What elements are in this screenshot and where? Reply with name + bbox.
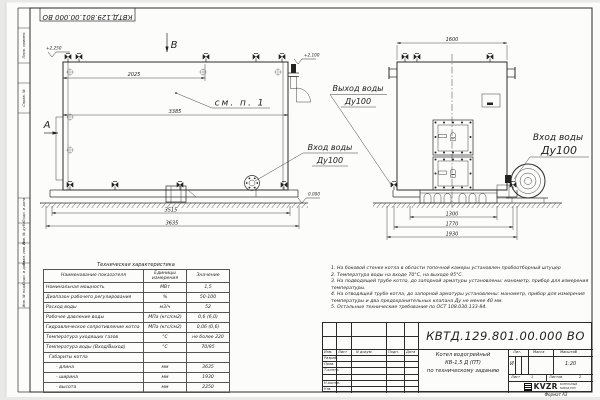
- dim-1600: 1600: [446, 37, 459, 43]
- row-units: МПа (кгс/см2): [144, 323, 187, 333]
- row-name: Гидравлическое сопротивление котла: [44, 323, 144, 333]
- row-value: 52: [187, 303, 230, 313]
- row-tkontr: Т.контр.: [324, 369, 340, 373]
- row-name: - ширина: [44, 373, 144, 383]
- row-nkontr: Н.контр.: [324, 382, 340, 386]
- row-value: 1,5: [187, 283, 230, 293]
- row-value: 0,06 (0,6): [187, 323, 230, 333]
- note-5: 5. Остальные технические требования по О…: [331, 305, 592, 311]
- kvzr-logo-text: KVZR: [534, 382, 558, 391]
- col-ndocum: N докум.: [356, 351, 373, 355]
- table-row: Температура воды (Вход/Выход)°С70/95: [44, 343, 230, 353]
- tech-header-row: Наименование показателя Единицы измерени…: [44, 270, 230, 283]
- elevation-ground: 0.000: [308, 192, 320, 197]
- row-units: МВт: [144, 283, 187, 293]
- company-logo: KVZR КОТЕЛЬНЫЙ ЗАВОД РЭП: [509, 381, 592, 392]
- outlet-pipe: [288, 64, 311, 102]
- row-value: 3635: [187, 363, 230, 373]
- side-view: 2025 3385 3515 3635 В А +2.250 +2.100 0.…: [40, 33, 320, 229]
- table-row: Гидравлическое сопротивление котлаМПа (к…: [44, 323, 230, 333]
- dim-2025: 2025: [128, 72, 141, 78]
- kvzr-logo-icon: [524, 383, 532, 391]
- note-3: 3. На подводящей трубе котла, до запорно…: [331, 279, 592, 291]
- part-title-line1: Котел водогрейный: [436, 352, 490, 360]
- inlet-flange: [245, 176, 260, 191]
- sheets-label: Листов: [549, 376, 562, 380]
- row-units: мм: [144, 373, 187, 383]
- lower-door: [433, 157, 473, 190]
- elevation-top-left: +2.250: [46, 46, 62, 51]
- table-row: Габариты котла: [44, 353, 230, 363]
- row-units: МПа (кгс/см2): [144, 313, 187, 323]
- col-data: Дата: [406, 351, 415, 355]
- row-utv: Утв.: [324, 388, 332, 392]
- row-name: - длина: [44, 363, 144, 373]
- view-arrow-B: В: [171, 40, 178, 51]
- doc-number: КВТД.129.801.00.000 ВО: [418, 323, 593, 349]
- part-title-line3: по техническому заданию: [427, 368, 499, 376]
- lit-value: И: [510, 362, 514, 367]
- note-1: 1. На боковой стенке котла в области топ…: [331, 266, 592, 272]
- technical-notes: 1. На боковой стенке котла в области топ…: [331, 266, 592, 312]
- table-row: Диапазон рабочего регулирования%50-100: [44, 293, 230, 303]
- note-4: 4. На отводящей трубе котла, до запорной…: [331, 292, 592, 304]
- col-izm: Изм.: [324, 351, 332, 355]
- table-row: Расход водым3/ч52: [44, 303, 230, 313]
- table-row: - ширинамм1930: [44, 373, 230, 383]
- tech-characteristics: Техническая характеристика Наименование …: [43, 262, 229, 393]
- table-row: - длинамм3635: [44, 363, 230, 373]
- row-units: [144, 353, 187, 363]
- row-razrab: Разраб.: [324, 357, 338, 361]
- outlet-size-label: Ду100: [344, 97, 371, 106]
- logo-caption-line2: ЗАВОД РЭП: [560, 386, 576, 390]
- col-list: Лист: [338, 351, 347, 355]
- row-value: [187, 353, 230, 363]
- pipe-labels: Выход воды Ду100 Вход воды Ду100 Вход во…: [255, 84, 589, 186]
- drawing-sheet: Перв. примен. Справ. № Подп. и дата Инв.…: [0, 0, 600, 400]
- sheets-value: 2: [579, 376, 581, 380]
- row-name: Температура воды (Вход/Выход): [44, 343, 144, 353]
- outlet-label: Выход воды: [333, 84, 384, 93]
- top-stamp-doc-number: КВТД.129.801.00.000 ВО: [42, 13, 132, 21]
- title-block: КВТД.129.801.00.000 ВО Изм. Лист N докум…: [322, 322, 592, 392]
- inlet-left-label: Вход воды: [308, 143, 353, 152]
- tech-table-title: Техническая характеристика: [43, 262, 229, 268]
- sheet-label: Лист: [511, 376, 520, 380]
- frame-label-podp-data-1: Подп. и дата: [22, 198, 26, 222]
- row-units: мм: [144, 383, 187, 393]
- format-label: Формат А3: [520, 392, 592, 397]
- frame-label-sprav-no: Справ. №: [22, 89, 26, 107]
- row-name: Расход воды: [44, 303, 144, 313]
- row-value: не более 220: [187, 333, 230, 343]
- section-label-A: А: [43, 120, 51, 131]
- row-value: 50-100: [187, 293, 230, 303]
- row-name: Температура уходящих газов: [44, 333, 144, 343]
- row-name: - высота: [44, 383, 144, 393]
- row-units: %: [144, 293, 187, 303]
- tech-header-value: Значение: [187, 270, 230, 283]
- tech-table: Наименование показателя Единицы измерени…: [43, 269, 230, 393]
- inlet-right-label: Вход воды: [533, 133, 583, 143]
- scale-value: 1:20: [565, 362, 576, 367]
- dim-1300: 1300: [446, 211, 459, 217]
- frame-label-perv-primen: Перв. примен.: [22, 32, 26, 59]
- table-row: - высотамм2250: [44, 383, 230, 393]
- row-units: °С: [144, 333, 187, 343]
- row-name: Диапазон рабочего регулирования: [44, 293, 144, 303]
- sheet-value: 1: [531, 376, 533, 380]
- part-title: Котел водогрейный КВ-1,5 Д (ПТ) по техни…: [418, 349, 508, 379]
- tech-header-name: Наименование показателя: [44, 270, 144, 283]
- dim-3635: 3635: [166, 220, 179, 226]
- row-value: 1930: [187, 373, 230, 383]
- tech-header-units: Единицы измерения: [144, 270, 187, 283]
- mass-label: Масса: [533, 351, 544, 355]
- scale-label: Масштаб: [560, 351, 577, 355]
- lit-label: Лит.: [513, 351, 521, 355]
- row-name: Номинальная мощность: [44, 283, 144, 293]
- row-name: Рабочее давление воды: [44, 313, 144, 323]
- inlet-left-size-label: Ду100: [316, 156, 343, 165]
- note-2: 2. Температура воды на входе 70°С, на вы…: [331, 273, 592, 279]
- row-units: м3/ч: [144, 303, 187, 313]
- dim-3385: 3385: [169, 109, 182, 115]
- row-units: мм: [144, 363, 187, 373]
- dim-3515: 3515: [165, 207, 178, 213]
- row-value: 2250: [187, 383, 230, 393]
- row-value: 70/95: [187, 343, 230, 353]
- frame-label-inv-podl: Инв. № подл.: [22, 283, 26, 308]
- dim-1930: 1930: [446, 231, 459, 237]
- frame-label-podp-data-2: Подп. и дата: [22, 261, 26, 285]
- row-name: Габариты котла: [44, 353, 144, 363]
- row-units: °С: [144, 343, 187, 353]
- elevation-top-right: +2.100: [304, 53, 320, 58]
- see-note-callout: см. п. 1: [215, 99, 266, 109]
- table-row: Рабочее давление водыМПа (кгс/см2)0,6 (6…: [44, 313, 230, 323]
- table-row: Температура уходящих газов°Сне более 220: [44, 333, 230, 343]
- row-prov: Пров.: [324, 363, 334, 367]
- inlet-right-size-label: Ду100: [540, 144, 577, 157]
- table-row: Номинальная мощностьМВт1,5: [44, 283, 230, 293]
- col-podp: Подп.: [388, 351, 399, 355]
- kvzr-logo-caption: КОТЕЛЬНЫЙ ЗАВОД РЭП: [560, 383, 578, 389]
- upper-door: [433, 120, 473, 155]
- row-value: 0,6 (6,0): [187, 313, 230, 323]
- part-title-line2: КВ-1,5 Д (ПТ): [445, 360, 481, 368]
- dim-1770: 1770: [446, 221, 459, 227]
